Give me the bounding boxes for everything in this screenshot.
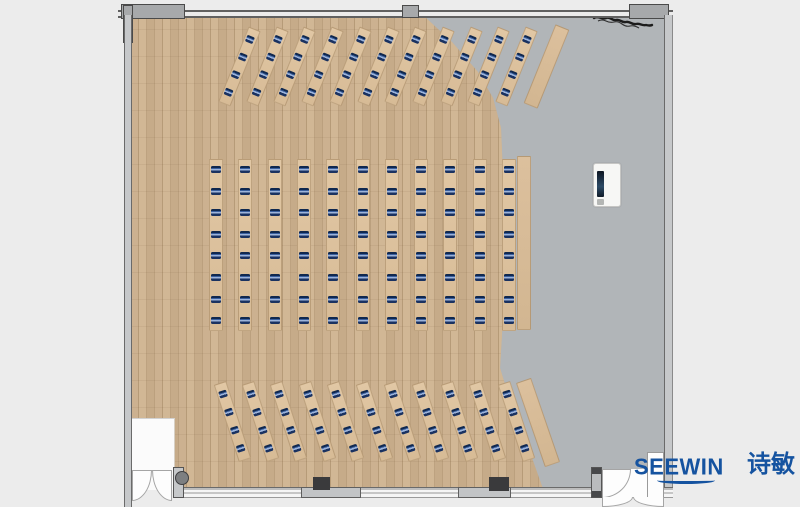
seat-marker: [434, 444, 444, 453]
seat-marker: [473, 390, 483, 399]
seat-marker: [504, 296, 514, 303]
seat-marker: [341, 70, 351, 79]
seat-marker: [337, 408, 347, 417]
seat-marker: [265, 52, 275, 61]
podium-screen-icon: [597, 171, 604, 197]
seat-marker: [519, 444, 529, 453]
seat-marker: [270, 231, 280, 238]
seat-marker: [211, 296, 221, 303]
seat-marker: [387, 231, 397, 238]
seat-marker: [251, 88, 261, 97]
seat-marker: [240, 317, 250, 324]
seat-marker: [501, 88, 511, 97]
door-post-cap: [592, 468, 601, 474]
wall-column: [313, 477, 330, 490]
seat-marker: [390, 88, 400, 97]
seat-marker: [508, 408, 518, 417]
seat-marker: [328, 35, 338, 44]
wall-column: [489, 477, 509, 491]
seat-marker: [315, 426, 325, 435]
seat-marker: [320, 444, 330, 453]
seat-marker: [445, 296, 455, 303]
seat-marker: [328, 317, 338, 324]
seat-marker: [211, 252, 221, 259]
seat-marker: [279, 88, 289, 97]
seat-marker: [286, 426, 296, 435]
top-wall: [118, 10, 673, 18]
desk-row-middle[interactable]: [297, 159, 311, 331]
seat-marker: [480, 70, 490, 79]
seat-marker: [240, 166, 250, 173]
seat-marker: [218, 390, 228, 399]
wall-segment: [301, 487, 361, 498]
seat-marker: [309, 408, 319, 417]
seat-marker: [416, 166, 426, 173]
seat-marker: [211, 274, 221, 281]
seat-marker: [240, 188, 250, 195]
seat-marker: [459, 52, 469, 61]
floor-plan-canvas: SEEWIN 诗敏: [0, 0, 800, 507]
seat-marker: [475, 166, 485, 173]
seat-marker: [358, 274, 368, 281]
seat-marker: [356, 35, 366, 44]
seat-marker: [258, 70, 268, 79]
seat-marker: [300, 35, 310, 44]
seat-marker: [416, 231, 426, 238]
seat-marker: [422, 408, 432, 417]
seat-marker: [416, 252, 426, 259]
seat-marker: [321, 52, 331, 61]
seat-marker: [270, 274, 280, 281]
seat-marker: [211, 209, 221, 216]
seat-marker: [504, 252, 514, 259]
seat-marker: [211, 231, 221, 238]
seat-marker: [377, 444, 387, 453]
seat-marker: [475, 274, 485, 281]
seat-marker: [224, 88, 234, 97]
desk-row-middle[interactable]: [356, 159, 370, 331]
seat-marker: [270, 252, 280, 259]
seat-marker: [387, 166, 397, 173]
seat-marker: [452, 70, 462, 79]
seat-marker: [487, 52, 497, 61]
seat-marker: [475, 317, 485, 324]
seat-marker: [264, 444, 274, 453]
seat-marker: [240, 209, 250, 216]
seat-marker: [270, 209, 280, 216]
seat-marker: [358, 188, 368, 195]
desk-row-middle[interactable]: [473, 159, 487, 331]
seat-marker: [473, 88, 483, 97]
seat-marker: [258, 426, 268, 435]
seat-marker: [445, 317, 455, 324]
seat-marker: [387, 252, 397, 259]
seat-marker: [475, 231, 485, 238]
seat-marker: [292, 444, 302, 453]
seat-marker: [387, 317, 397, 324]
seat-marker: [245, 35, 255, 44]
seat-marker: [366, 408, 376, 417]
seat-marker: [211, 317, 221, 324]
seat-marker: [358, 252, 368, 259]
seat-marker: [462, 444, 472, 453]
seat-marker: [362, 88, 372, 97]
seat-marker: [240, 274, 250, 281]
seat-marker: [280, 408, 290, 417]
seat-marker: [211, 188, 221, 195]
seat-marker: [358, 166, 368, 173]
seat-marker: [502, 390, 512, 399]
seat-marker: [314, 70, 324, 79]
seat-marker: [457, 426, 467, 435]
desk-row-middle[interactable]: [326, 159, 340, 331]
seat-marker: [522, 35, 532, 44]
seat-marker: [358, 209, 368, 216]
seat-marker: [479, 408, 489, 417]
seat-marker: [417, 88, 427, 97]
seat-marker: [445, 390, 455, 399]
furniture-layer: [0, 0, 800, 507]
seat-marker: [504, 188, 514, 195]
seat-marker: [252, 408, 262, 417]
seat-marker: [387, 296, 397, 303]
seat-marker: [331, 390, 341, 399]
seat-marker: [394, 408, 404, 417]
seat-marker: [425, 70, 435, 79]
seat-marker: [513, 426, 523, 435]
seat-marker: [274, 390, 284, 399]
seat-marker: [358, 296, 368, 303]
seat-marker: [358, 231, 368, 238]
seat-marker: [270, 188, 280, 195]
desk-row-middle[interactable]: [238, 159, 252, 331]
seat-marker: [328, 231, 338, 238]
seat-marker: [485, 426, 495, 435]
podium-lectern[interactable]: [593, 163, 621, 207]
desk-row-middle[interactable]: [502, 159, 516, 331]
seat-marker: [286, 70, 296, 79]
seat-marker: [475, 252, 485, 259]
seat-marker: [328, 166, 338, 173]
seat-marker: [376, 52, 386, 61]
seat-marker: [445, 209, 455, 216]
seat-marker: [416, 390, 426, 399]
seat-marker: [349, 52, 359, 61]
seat-marker: [246, 390, 256, 399]
seat-marker: [270, 166, 280, 173]
brand-logo-smile-icon: [657, 477, 715, 484]
seat-marker: [349, 444, 359, 453]
wall-pilaster: [629, 4, 669, 19]
seat-marker: [475, 188, 485, 195]
right-wall: [664, 15, 673, 498]
desk-row-middle[interactable]: [268, 159, 282, 331]
seat-marker: [416, 296, 426, 303]
seat-marker: [445, 252, 455, 259]
seat-marker: [445, 274, 455, 281]
desk-row-middle[interactable]: [443, 159, 457, 331]
seat-marker: [387, 274, 397, 281]
seat-marker: [387, 209, 397, 216]
seat-marker: [400, 426, 410, 435]
seat-marker: [504, 209, 514, 216]
seat-marker: [432, 52, 442, 61]
seat-marker: [293, 52, 303, 61]
seat-marker: [515, 52, 525, 61]
seat-marker: [445, 88, 455, 97]
seat-marker: [494, 35, 504, 44]
seat-marker: [299, 188, 309, 195]
seat-marker: [240, 231, 250, 238]
seat-marker: [416, 188, 426, 195]
seat-marker: [416, 317, 426, 324]
sideboard-middle[interactable]: [517, 156, 531, 330]
wall-joint: [175, 471, 189, 485]
seat-marker: [211, 166, 221, 173]
seat-marker: [383, 35, 393, 44]
seat-marker: [328, 296, 338, 303]
seat-marker: [439, 35, 449, 44]
seat-marker: [504, 274, 514, 281]
seat-marker: [445, 188, 455, 195]
seat-marker: [299, 231, 309, 238]
seat-marker: [299, 274, 309, 281]
seat-marker: [299, 252, 309, 259]
seat-marker: [388, 390, 398, 399]
seat-marker: [504, 317, 514, 324]
seat-marker: [224, 408, 234, 417]
desk-row-middle[interactable]: [385, 159, 399, 331]
seat-marker: [397, 70, 407, 79]
brand-logo-chinese: 诗敏: [747, 452, 795, 478]
seat-marker: [235, 444, 245, 453]
seat-marker: [445, 166, 455, 173]
seat-marker: [229, 426, 239, 435]
door-post: [591, 467, 602, 498]
seat-marker: [466, 35, 476, 44]
seat-marker: [328, 252, 338, 259]
seat-marker: [504, 231, 514, 238]
seat-marker: [451, 408, 461, 417]
seat-marker: [299, 166, 309, 173]
wall-pilaster: [402, 5, 419, 18]
seat-marker: [416, 209, 426, 216]
seat-marker: [508, 70, 518, 79]
seat-marker: [238, 52, 248, 61]
seat-marker: [504, 166, 514, 173]
seat-marker: [328, 274, 338, 281]
brand-logo-text: SEEWIN: [634, 455, 724, 478]
podium-pad-icon: [597, 199, 604, 205]
seat-marker: [299, 209, 309, 216]
seat-marker: [270, 317, 280, 324]
seat-marker: [334, 88, 344, 97]
seat-marker: [240, 252, 250, 259]
seat-marker: [428, 426, 438, 435]
seat-marker: [404, 52, 414, 61]
seat-marker: [358, 317, 368, 324]
seat-marker: [299, 296, 309, 303]
seat-marker: [411, 35, 421, 44]
seat-marker: [303, 390, 313, 399]
seat-marker: [491, 444, 501, 453]
desk-row-middle[interactable]: [209, 159, 223, 331]
seat-marker: [270, 296, 280, 303]
seat-marker: [475, 296, 485, 303]
desk-row-middle[interactable]: [414, 159, 428, 331]
seat-marker: [371, 426, 381, 435]
seat-marker: [328, 209, 338, 216]
seat-marker: [343, 426, 353, 435]
seat-marker: [445, 231, 455, 238]
seat-marker: [369, 70, 379, 79]
seat-marker: [231, 70, 241, 79]
seat-marker: [328, 188, 338, 195]
seat-marker: [475, 209, 485, 216]
seat-marker: [273, 35, 283, 44]
seat-marker: [307, 88, 317, 97]
seat-marker: [416, 274, 426, 281]
seat-marker: [240, 296, 250, 303]
seat-marker: [299, 317, 309, 324]
seat-marker: [387, 188, 397, 195]
door-post-cap: [592, 491, 601, 497]
left-wall: [124, 15, 132, 507]
seat-marker: [360, 390, 370, 399]
seat-marker: [406, 444, 416, 453]
